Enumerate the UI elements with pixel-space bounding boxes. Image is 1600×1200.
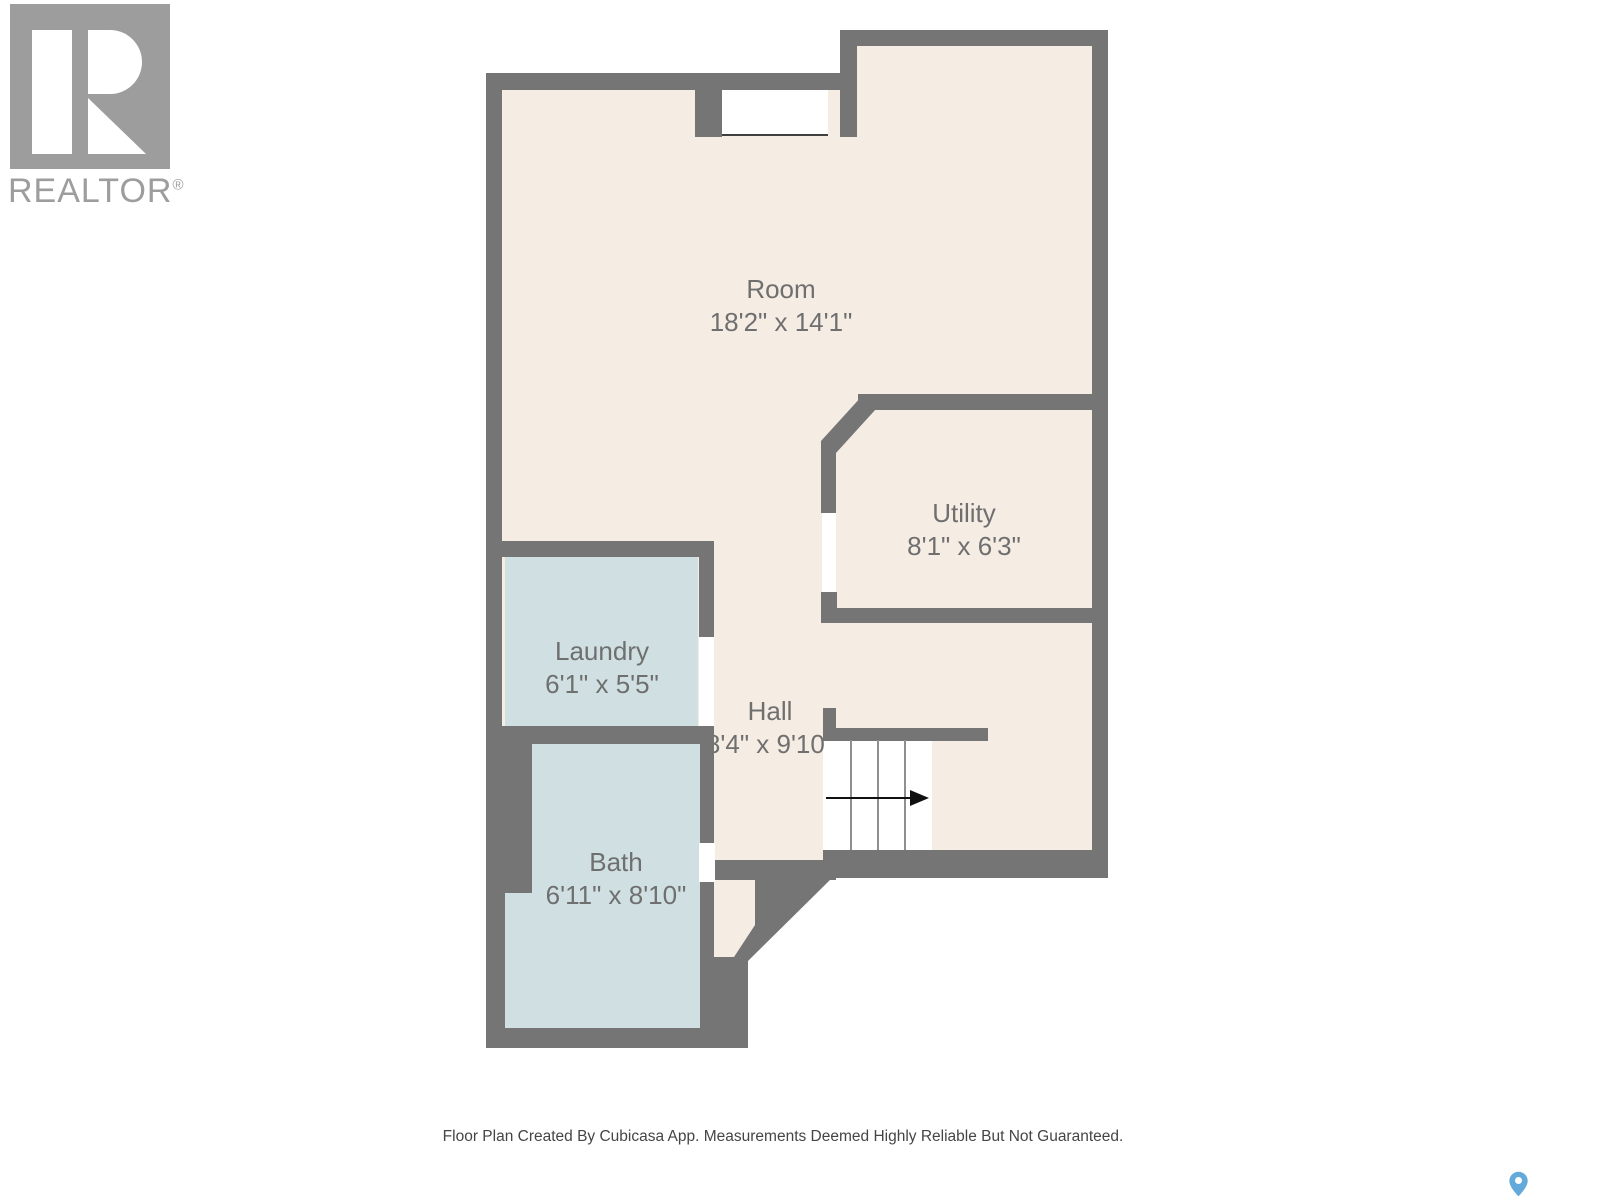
wall-segment	[840, 46, 857, 137]
laundry-name: Laundry	[555, 636, 649, 666]
wall-segment	[821, 592, 837, 608]
wall-segment	[695, 90, 722, 137]
wall-segment-bath-right	[700, 744, 714, 1028]
bath-dimensions: 6'11" x 8'10"	[546, 879, 687, 912]
hall-label: Hall 8'4" x 9'10"	[706, 695, 834, 761]
wall-segment-utility-west	[821, 441, 836, 513]
stair-tread-line	[850, 740, 852, 850]
stair-tread-line	[904, 740, 906, 850]
wall-segment-laundry-top	[486, 541, 714, 557]
location-pin-icon	[1508, 1170, 1529, 1200]
realtor-wordmark: REALTOR	[8, 172, 172, 210]
wall-segment-utility-bottom	[821, 608, 1092, 623]
bath-name: Bath	[589, 847, 643, 877]
door-opening-utility	[822, 513, 836, 592]
realtor-logo-text: REALTOR®	[8, 172, 188, 211]
utility-dimensions: 8'1" x 6'3"	[907, 530, 1021, 563]
registered-mark: ®	[172, 177, 184, 194]
door-opening-bath	[699, 843, 715, 882]
bath-label: Bath 6'11" x 8'10"	[546, 846, 687, 912]
room-dimensions: 18'2" x 14'1"	[710, 306, 853, 339]
utility-name: Utility	[932, 498, 996, 528]
wall-segment-laundry-bath	[486, 726, 714, 744]
realtor-block-r-icon	[10, 4, 170, 169]
wall-segment-utility-top	[858, 394, 1092, 410]
door-opening-laundry	[699, 637, 714, 726]
stair-tread-line	[877, 740, 879, 850]
stairs-arrow-line	[826, 797, 912, 799]
wall-segment-under-stairs	[823, 850, 1108, 878]
wall-segment-laundry-right	[699, 541, 714, 637]
right-arrow-icon	[910, 790, 929, 806]
window-opening	[722, 90, 828, 136]
utility-label: Utility 8'1" x 6'3"	[907, 497, 1021, 563]
laundry-dimensions: 6'1" x 5'5"	[545, 668, 659, 701]
realtor-logo	[10, 4, 170, 174]
room-label: Room 18'2" x 14'1"	[710, 273, 853, 339]
hall-dimensions: 8'4" x 9'10"	[706, 728, 834, 761]
floor-plan: Room 18'2" x 14'1" Utility 8'1" x 6'3" L…	[0, 0, 1600, 1200]
laundry-label: Laundry 6'1" x 5'5"	[545, 635, 659, 701]
room-name: Room	[746, 274, 815, 304]
hall-name: Hall	[748, 696, 793, 726]
footer-disclaimer: Floor Plan Created By Cubicasa App. Meas…	[443, 1128, 1124, 1146]
wall-segment-bath-left	[486, 744, 532, 893]
wall-segment-hall-bottom	[714, 860, 836, 880]
